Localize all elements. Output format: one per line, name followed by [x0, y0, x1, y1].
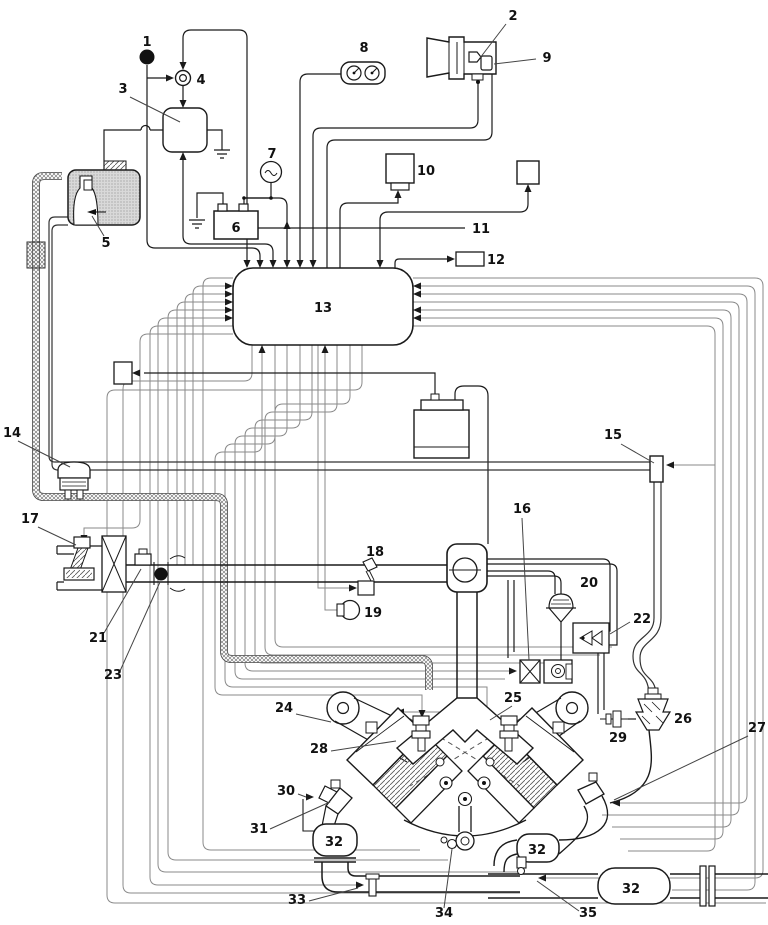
component-label-28: 28	[310, 742, 328, 757]
component-label-20: 20	[580, 576, 598, 591]
component-label-21: 21	[89, 631, 107, 646]
sensor-7	[261, 162, 282, 183]
component-label-10: 10	[417, 164, 435, 179]
component-label-6: 6	[231, 221, 240, 236]
egr-valve-26	[636, 688, 670, 730]
junction-box	[114, 362, 132, 384]
component-label-19: 19	[364, 606, 382, 621]
sensor-34	[448, 840, 457, 849]
component-label-22: 22	[633, 612, 651, 627]
component-label-32b: 32	[528, 843, 546, 858]
component-label-17: 17	[21, 512, 39, 527]
sensor-23	[155, 568, 168, 581]
temp-sensor-17	[74, 537, 90, 548]
component-label-27: 27	[748, 721, 766, 736]
fuel-tank-5	[68, 161, 140, 225]
air-cleaner-2	[427, 37, 496, 84]
component-label-25: 25	[504, 691, 522, 706]
component-label-31: 31	[250, 822, 268, 837]
component-label-23: 23	[104, 668, 122, 683]
valve-22	[573, 623, 609, 653]
sensor-9	[481, 56, 492, 70]
component-label-11: 11	[472, 222, 490, 237]
sensor-dot-1	[140, 50, 155, 65]
component-label-12: 12	[487, 253, 505, 268]
sensor-21	[135, 554, 151, 565]
component-label-13: 13	[314, 301, 332, 316]
top-components	[68, 37, 539, 266]
valve-4	[176, 71, 191, 86]
sensor-box	[517, 161, 539, 184]
component-label-30: 30	[277, 784, 295, 799]
component-label-34: 34	[435, 906, 453, 921]
ignition-coil	[414, 394, 469, 458]
component-label-7: 7	[267, 147, 276, 162]
engine	[327, 692, 588, 850]
component-label-4: 4	[196, 73, 205, 88]
component-label-1: 1	[142, 35, 151, 50]
component-label-3: 3	[118, 82, 127, 97]
idle-valve-16	[520, 660, 572, 683]
component-label-15: 15	[604, 428, 622, 443]
intake-pipe	[126, 549, 447, 591]
gauge-cluster-8	[341, 62, 385, 84]
module-10	[386, 154, 414, 190]
sensor-18	[358, 558, 377, 595]
component-label-8: 8	[359, 41, 368, 56]
component-label-2: 2	[508, 9, 517, 24]
component-label-18: 18	[366, 545, 384, 560]
component-label-32a: 32	[325, 835, 343, 850]
o2-sensor-35	[517, 857, 526, 875]
component-label-33: 33	[288, 893, 306, 908]
component-label-29: 29	[609, 731, 627, 746]
throttle-body	[447, 544, 487, 698]
component-label-32c: 32	[622, 882, 640, 897]
component-label-26: 26	[674, 712, 692, 727]
check-valve-15	[650, 456, 663, 482]
component-label-14: 14	[3, 426, 21, 441]
air-intake-17	[57, 536, 126, 592]
diaphragm-valve-20	[546, 594, 576, 622]
component-label-16: 16	[513, 502, 531, 517]
component-label-9: 9	[542, 51, 551, 66]
schematic-page: 1234567891011121314151617181920212223242…	[0, 0, 768, 925]
fitting-29	[600, 711, 636, 727]
schematic-canvas: 1234567891011121314151617181920212223242…	[0, 0, 768, 925]
component-label-35: 35	[579, 906, 597, 921]
relay-3	[163, 108, 207, 152]
center-downpipe	[441, 806, 474, 850]
fitting-27	[578, 782, 604, 804]
solenoid-19	[337, 601, 360, 620]
component-label-5: 5	[101, 236, 110, 251]
component-label-24: 24	[275, 701, 293, 716]
resistor-12	[456, 252, 484, 266]
